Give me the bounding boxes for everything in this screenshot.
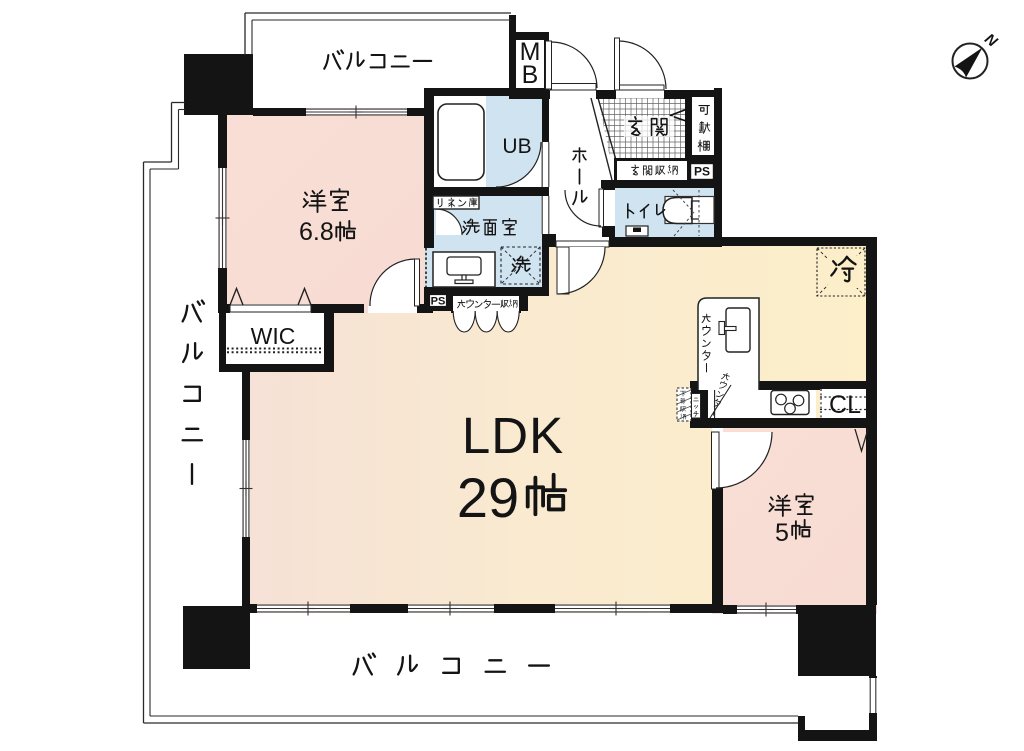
svg-text:PS: PS xyxy=(694,165,710,179)
svg-text:6.8: 6.8 xyxy=(299,218,334,246)
svg-text:UB: UB xyxy=(502,135,531,158)
svg-text:PS: PS xyxy=(431,296,446,308)
svg-text:WIC: WIC xyxy=(251,323,296,349)
svg-text:LDK: LDK xyxy=(462,407,564,464)
svg-text:5: 5 xyxy=(775,519,789,547)
svg-text:CL: CL xyxy=(829,391,861,419)
svg-text:29: 29 xyxy=(457,466,519,529)
svg-text:B: B xyxy=(522,61,539,89)
